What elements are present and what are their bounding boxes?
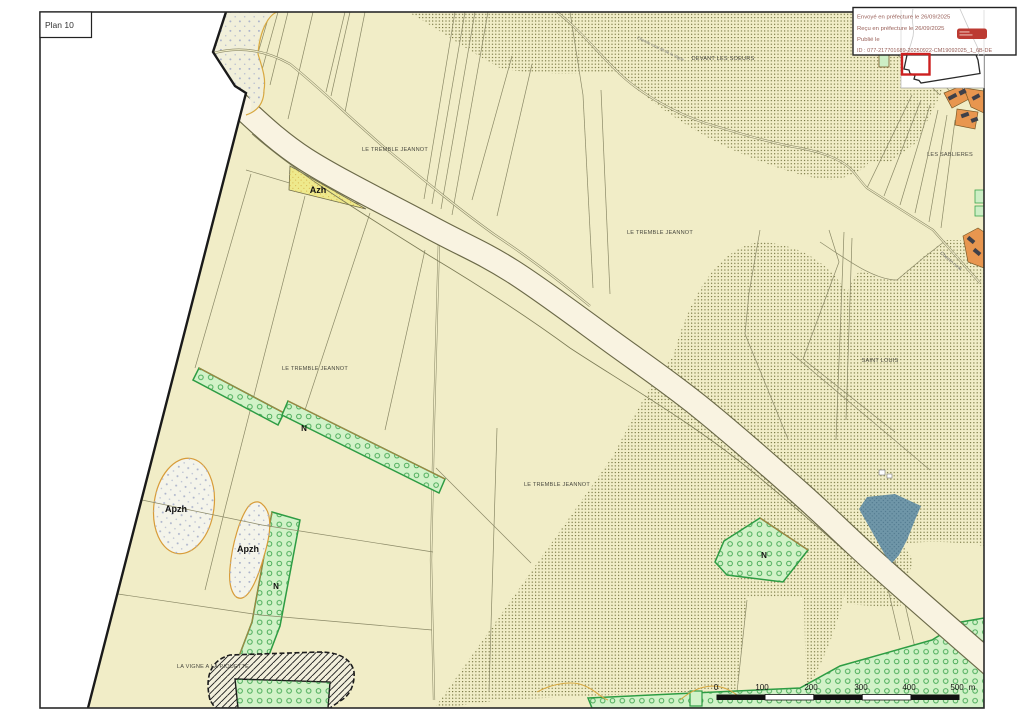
svg-text:m: m (969, 683, 976, 692)
svg-text:SAINT LOUIS: SAINT LOUIS (862, 358, 899, 364)
svg-text:Apzh: Apzh (237, 544, 259, 554)
svg-text:300: 300 (854, 683, 868, 692)
svg-text:Publié le: Publié le (857, 37, 880, 43)
svg-text:500: 500 (950, 683, 964, 692)
svg-text:LE TREMBLE JEANNOT: LE TREMBLE JEANNOT (524, 482, 590, 488)
svg-text:Envoyé en préfecture le 26/09/: Envoyé en préfecture le 26/09/2025 (857, 15, 951, 21)
svg-text:100: 100 (755, 683, 769, 692)
svg-text:DEVANT LES SOEURS: DEVANT LES SOEURS (692, 56, 755, 62)
svg-text:200: 200 (804, 683, 818, 692)
svg-text:0: 0 (714, 683, 719, 692)
svg-text:Plan 10: Plan 10 (45, 20, 74, 30)
svg-text:LE TREMBLE JEANNOT: LE TREMBLE JEANNOT (627, 230, 693, 236)
svg-text:LA VIGNE A LA PIQUETTE: LA VIGNE A LA PIQUETTE (177, 664, 249, 670)
svg-text:LES SABLIERES: LES SABLIERES (927, 152, 973, 158)
svg-text:Reçu en préfecture le 26/09/20: Reçu en préfecture le 26/09/2025 (857, 26, 945, 32)
svg-text:Apzh: Apzh (165, 504, 187, 514)
svg-text:N: N (301, 424, 307, 433)
svg-text:N: N (761, 551, 767, 560)
svg-text:Azh: Azh (310, 185, 327, 195)
svg-text:LE TREMBLE JEANNOT: LE TREMBLE JEANNOT (282, 366, 348, 372)
svg-text:400: 400 (902, 683, 916, 692)
svg-text:N: N (273, 582, 279, 591)
svg-text:LE TREMBLE JEANNOT: LE TREMBLE JEANNOT (362, 147, 428, 153)
